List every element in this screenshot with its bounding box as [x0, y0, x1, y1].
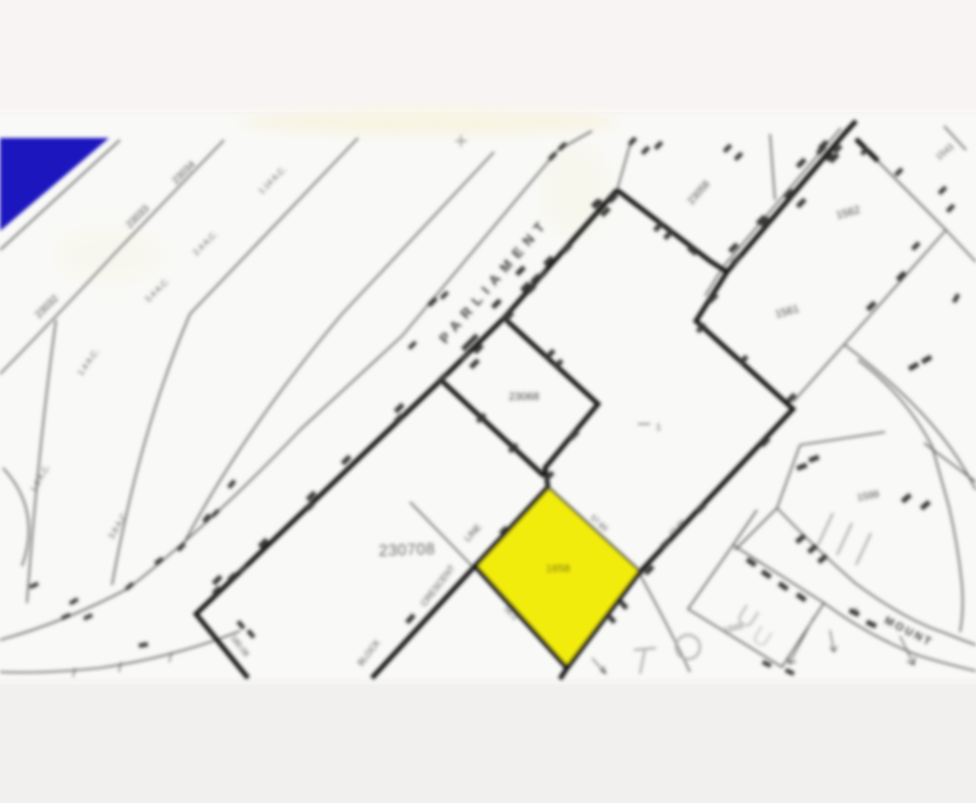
svg-text:1: 1	[656, 422, 661, 432]
svg-text:23068: 23068	[509, 391, 540, 403]
svg-text:1658: 1658	[546, 563, 570, 575]
svg-text:230708: 230708	[379, 541, 436, 560]
